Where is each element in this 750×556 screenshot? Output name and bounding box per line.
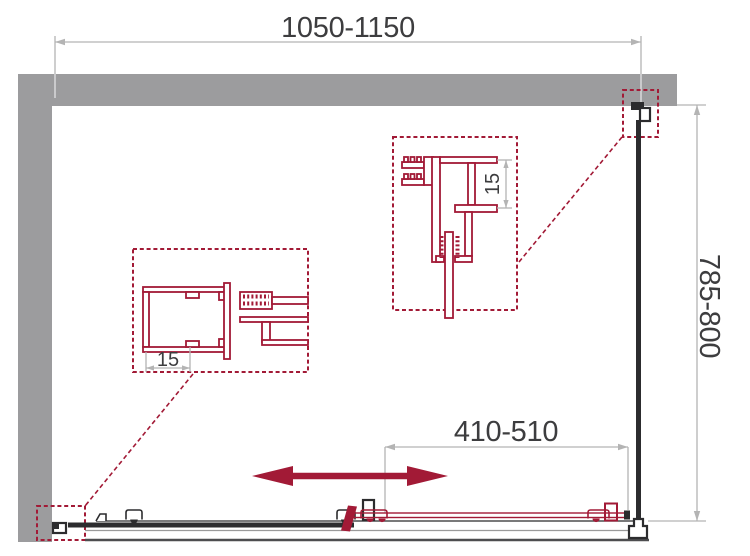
wall-profile-clamp (640, 108, 650, 121)
detail-top-profile-section: 15 (402, 157, 512, 318)
technical-drawing-canvas: 1050-1150 785-800 410-510 (0, 0, 750, 556)
walls (18, 74, 677, 542)
dimension-door-opening: 410-510 (385, 416, 628, 513)
panel-end-cap (624, 511, 630, 520)
shower-enclosure-dimension-diagram: 1050-1150 785-800 410-510 (0, 0, 750, 556)
rail-end-bracket (96, 514, 106, 521)
top-wall (18, 74, 677, 106)
left-wall (18, 74, 52, 542)
sliding-glass-section (272, 297, 308, 304)
bottom-wall-profile (53, 523, 66, 533)
fixed-glass-section (224, 283, 230, 359)
dimension-depth: 785-800 (648, 105, 725, 521)
sliding-panel (354, 513, 628, 518)
side-glass-panel (636, 120, 641, 518)
bottom-rail-assembly (68, 500, 649, 540)
overall-width-label: 1050-1150 (281, 12, 415, 44)
glass-panel-section (445, 232, 453, 318)
leader-line-left (85, 374, 193, 506)
detail-callouts (37, 90, 658, 540)
right-side-panel (629, 102, 650, 538)
door-opening-label: 410-510 (454, 416, 558, 448)
bottom-foot-bracket (629, 519, 647, 538)
fixed-panel (68, 523, 354, 528)
top-adjustment-label: 15 (482, 173, 504, 195)
left-adjustment-label: 15 (157, 349, 179, 371)
leader-line-top (519, 137, 622, 262)
detail-left-profile-section: 15 (143, 283, 308, 372)
slide-direction-arrow (252, 466, 448, 486)
depth-label: 785-800 (693, 254, 725, 358)
